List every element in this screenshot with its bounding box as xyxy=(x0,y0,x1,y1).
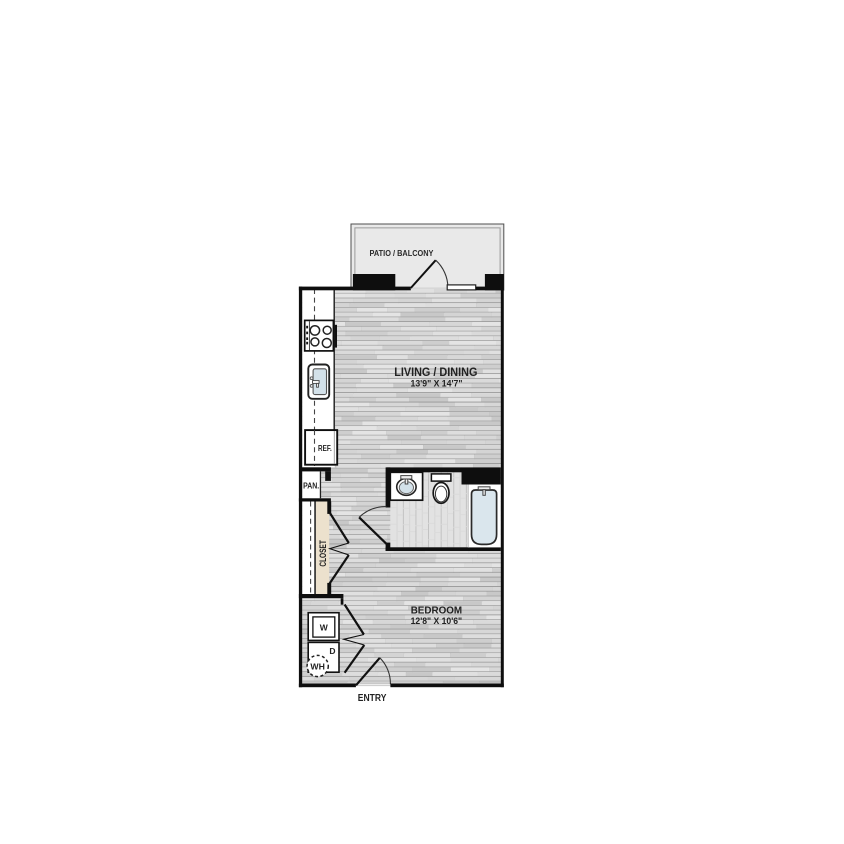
svg-text:PATIO / BALCONY: PATIO / BALCONY xyxy=(370,248,434,258)
svg-text:LIVING / DINING: LIVING / DINING xyxy=(394,365,477,379)
svg-text:ENTRY: ENTRY xyxy=(358,693,387,704)
svg-text:12'8" X 10'6": 12'8" X 10'6" xyxy=(411,616,463,626)
svg-text:REF.: REF. xyxy=(318,443,332,453)
svg-text:CLOSET: CLOSET xyxy=(318,540,328,567)
svg-text:BEDROOM: BEDROOM xyxy=(411,606,462,617)
svg-text:W: W xyxy=(320,623,329,633)
svg-text:13'9" X 14'7": 13'9" X 14'7" xyxy=(411,378,463,388)
svg-text:PAN.: PAN. xyxy=(303,480,319,490)
svg-text:WH: WH xyxy=(310,661,325,671)
svg-text:D: D xyxy=(329,646,335,656)
